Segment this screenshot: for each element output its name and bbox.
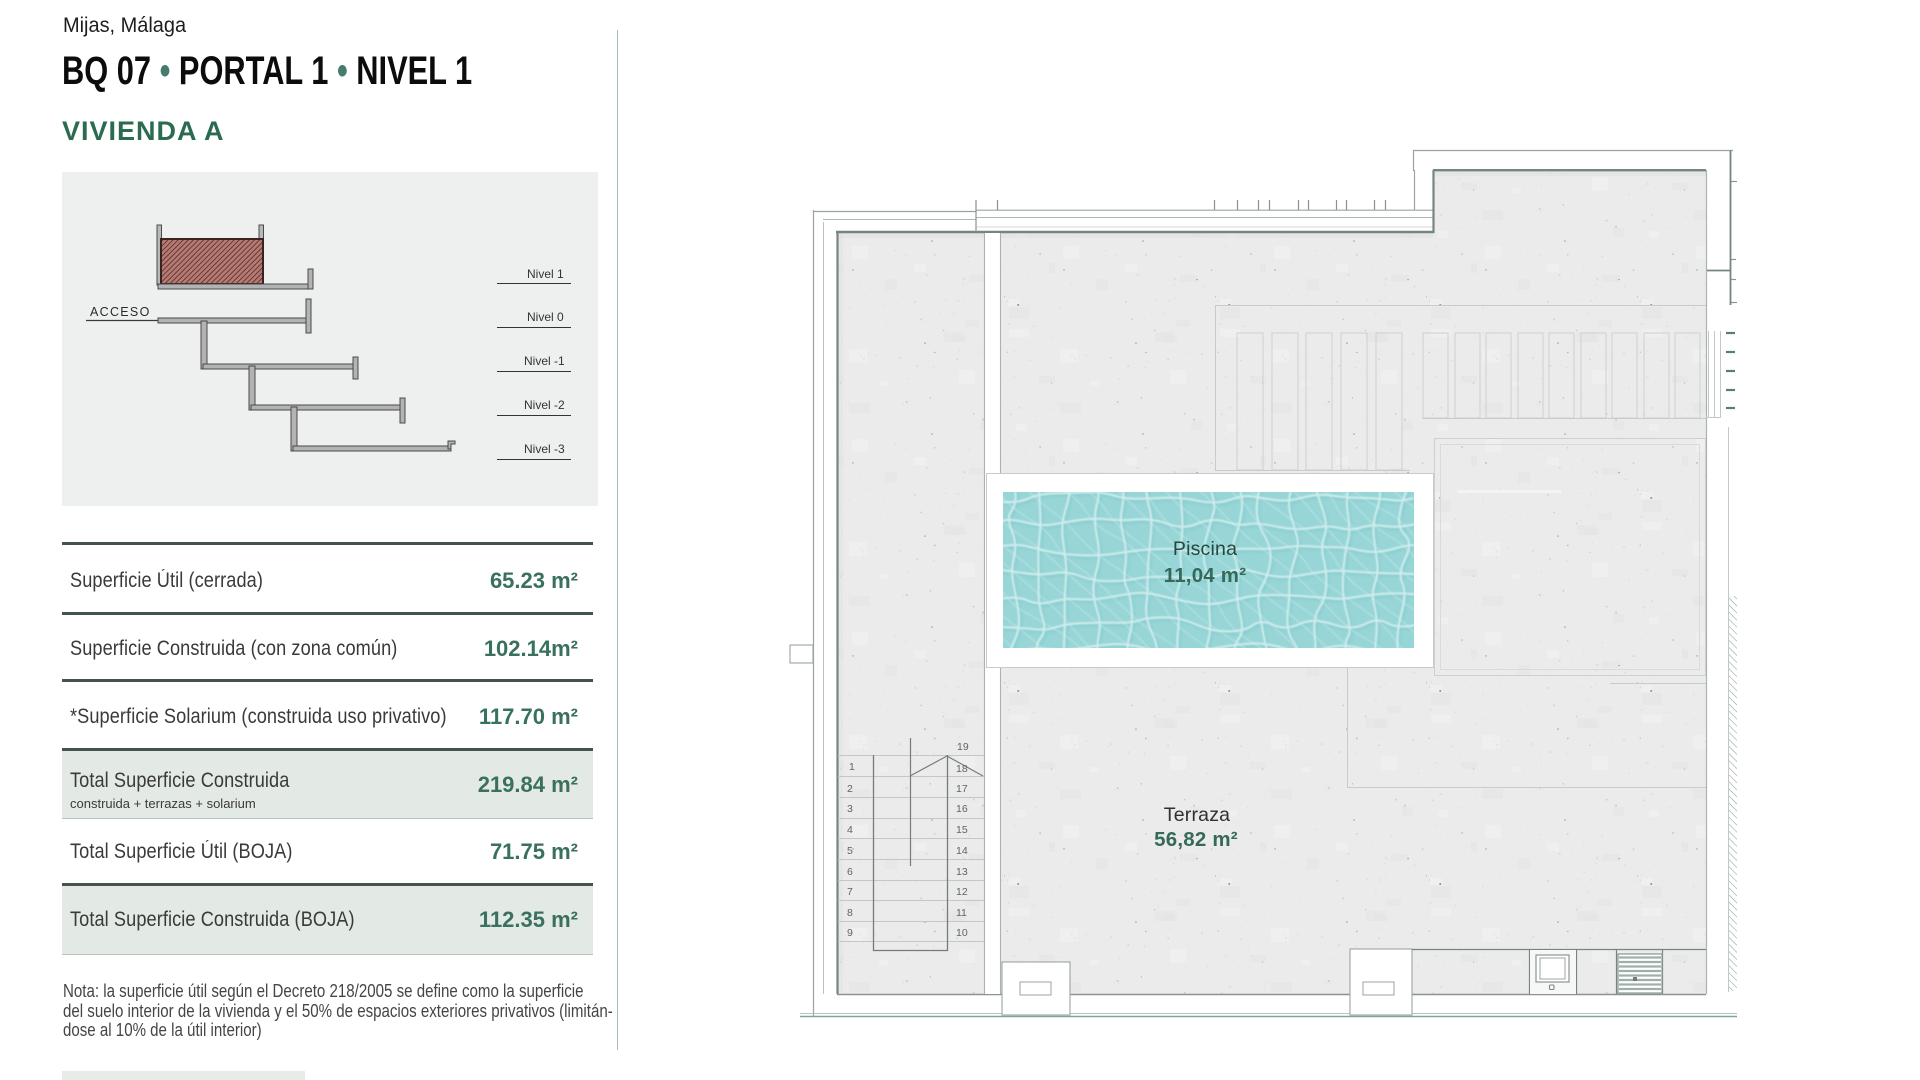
svg-text:1: 1 [849, 761, 855, 773]
svg-text:16: 16 [956, 803, 968, 815]
svg-text:9: 9 [847, 927, 853, 939]
svg-text:3: 3 [847, 803, 853, 815]
svg-text:19: 19 [957, 741, 969, 753]
svg-text:12: 12 [956, 886, 968, 898]
svg-text:18: 18 [956, 763, 968, 775]
svg-text:13: 13 [956, 866, 968, 878]
svg-text:4: 4 [847, 824, 853, 836]
svg-text:8: 8 [847, 907, 853, 919]
svg-text:56,82 m²: 56,82 m² [1154, 828, 1238, 851]
svg-text:Terraza: Terraza [1164, 804, 1230, 826]
svg-text:5: 5 [847, 845, 853, 857]
svg-text:6: 6 [847, 866, 853, 878]
svg-text:11: 11 [956, 907, 967, 919]
svg-text:15: 15 [956, 824, 968, 836]
svg-text:14: 14 [956, 845, 968, 857]
svg-text:10: 10 [956, 927, 968, 939]
svg-text:2: 2 [847, 783, 853, 795]
svg-text:Piscina: Piscina [1173, 538, 1237, 560]
svg-text:11,04 m²: 11,04 m² [1164, 564, 1247, 587]
svg-text:17: 17 [956, 783, 968, 795]
svg-text:7: 7 [847, 886, 853, 898]
